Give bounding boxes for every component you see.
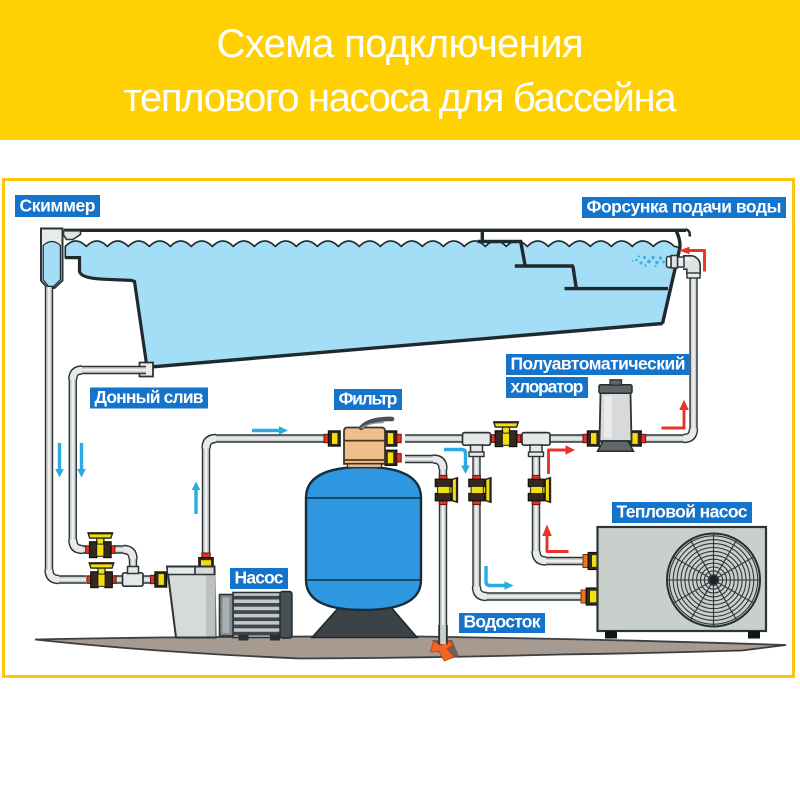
svg-text:Фильтр: Фильтр xyxy=(339,389,398,409)
svg-text:Тепловой насос: Тепловой насос xyxy=(617,502,748,522)
svg-text:теплового насоса для бассейна: теплового насоса для бассейна xyxy=(124,76,678,120)
svg-text:Насос: Насос xyxy=(235,568,284,588)
svg-text:Схема подключения: Схема подключения xyxy=(217,22,584,66)
svg-text:Скиммер: Скиммер xyxy=(20,196,96,216)
svg-text:Полуавтоматический: Полуавтоматический xyxy=(511,354,686,374)
svg-text:Донный слив: Донный слив xyxy=(95,387,204,407)
svg-text:Водосток: Водосток xyxy=(464,612,541,632)
svg-text:хлоратор: хлоратор xyxy=(511,377,584,397)
svg-text:Форсунка подачи воды: Форсунка подачи воды xyxy=(587,197,782,217)
